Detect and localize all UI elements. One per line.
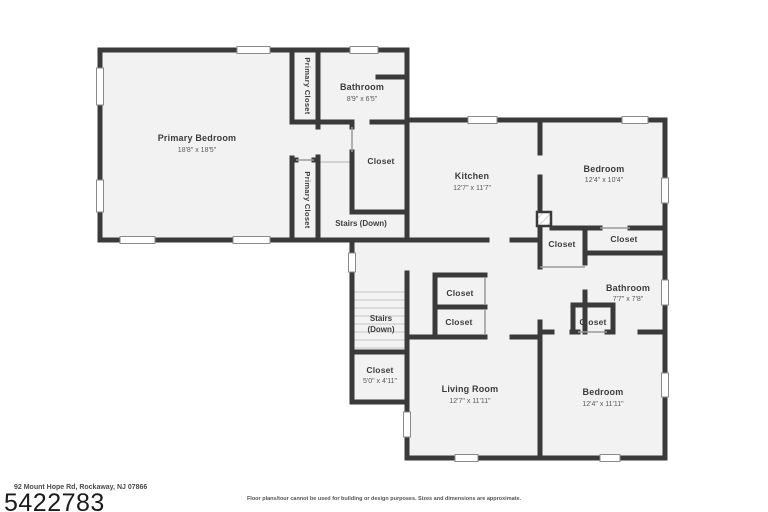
label-closet-mid-bottom: Closet [445,317,472,327]
label-primary-bedroom: Primary Bedroom [158,133,237,143]
label-primary-closet-top: Primary Closet [303,57,312,114]
label-primary-closet-bottom: Primary Closet [303,171,312,228]
label-closet-bath: Closet [579,317,606,327]
label-kitchen: Kitchen [455,171,489,181]
label-bathroom-upper: Bathroom [340,82,384,92]
label-stairs-lower-1: Stairs [370,314,393,323]
label-stairs-lower-2: (Down) [367,325,394,334]
label-closet-hall-left: Closet [548,239,575,249]
dims-bedroom-upper-right: 12'4" x 10'4" [585,177,624,184]
label-closet-mid-top: Closet [446,288,473,298]
label-closet-under-stairs: Closet [366,365,393,375]
label-bathroom-right: Bathroom [606,283,650,293]
label-bedroom-lower-right: Bedroom [583,387,624,397]
listing-number: 5422783 [4,489,105,512]
label-living-room: Living Room [442,384,499,394]
dims-closet-under-stairs: 5'0" x 4'11" [363,378,397,385]
dims-kitchen: 12'7" x 11'7" [453,185,491,192]
dims-primary-bedroom: 18'8" x 18'5" [178,147,217,154]
dims-bathroom-upper: 8'9" x 6'5" [347,96,378,103]
label-closet-upper: Closet [367,156,394,166]
disclaimer-text: Floor plans/tour cannot be used for buil… [247,496,522,502]
label-stairs-upper: Stairs (Down) [335,219,387,228]
dims-bathroom-right: 7'7" x 7'8" [613,296,644,303]
dims-bedroom-lower-right: 12'4" x 11'11" [582,401,624,408]
floor-area [100,50,665,458]
label-bedroom-upper-right: Bedroom [584,164,625,174]
dims-living-room: 12'7" x 11'11" [449,398,491,405]
label-closet-hall-right: Closet [610,234,637,244]
footer: 92 Mount Hope Rd, Rockaway, NJ 07866 542… [4,484,522,512]
floor-plan-page: Primary Bedroom 18'8" x 18'5" Primary Cl… [0,0,768,512]
chimney [537,212,551,226]
floor-plan: Primary Bedroom 18'8" x 18'5" Primary Cl… [0,0,768,512]
